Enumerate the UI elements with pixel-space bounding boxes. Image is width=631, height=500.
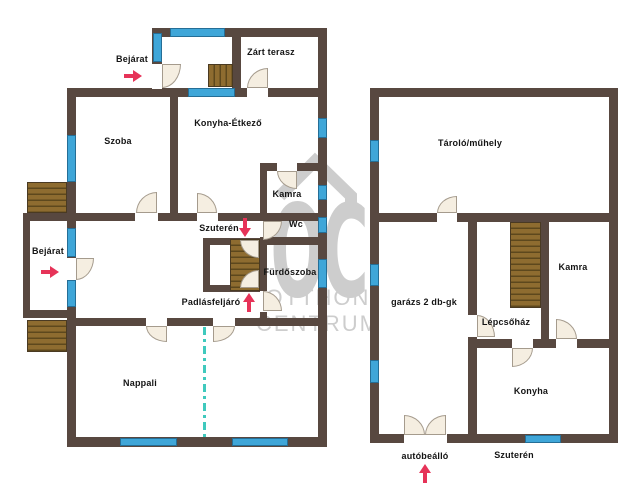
arrow-szuteren-down [239,218,251,237]
wall [541,213,549,348]
label-bejarat-left: Bejárat [32,246,64,256]
wall [370,213,618,222]
window [318,185,327,200]
stairs [27,182,67,213]
door-opening [135,213,158,221]
window [370,264,379,286]
door-opening [213,318,235,326]
window [232,438,288,446]
label-autobeallo: autóbeálló [401,451,448,461]
label-furdoszoba: Fürdőszoba [264,267,317,277]
window [188,88,235,97]
wall [477,339,618,348]
door-opening [404,434,447,443]
door-opening [556,339,577,348]
label-szuteren-left: Szuterén [199,223,239,233]
label-konyha-etkezo: Konyha-Étkező [194,118,262,128]
label-wc: Wc [289,219,303,229]
door-opening [277,163,297,171]
label-lepcsohaz: Lépcsőház [482,317,530,327]
window [318,217,327,233]
label-kamra-right: Kamra [558,262,587,272]
stairs [510,222,541,308]
arrow-autobeallo-up [419,464,431,483]
door-opening [152,64,162,89]
wall [170,97,178,221]
door-opening [468,315,477,337]
label-garazs: garázs 2 db-gk [391,297,457,307]
room-divider-line [203,327,206,437]
stairs [27,320,67,352]
wall [260,163,267,221]
floor-plan-canvas: OC OTTHON CENTRUM BejáratZárt teraszSzob… [0,0,631,500]
label-zart-terasz: Zárt terasz [247,47,295,57]
window [67,280,76,307]
wall [23,310,67,318]
wall [370,88,618,97]
label-konyha: Konyha [514,386,548,396]
wall [67,318,327,326]
arrow-padlasfeljaro-up [243,293,255,312]
label-szoba: Szoba [104,136,132,146]
label-szuteren-right: Szuterén [494,450,534,460]
window [370,140,379,162]
wall [203,238,210,292]
door-opening [197,213,218,221]
window [170,28,225,37]
window [318,259,327,288]
door-opening [146,318,167,326]
door-opening [67,258,76,281]
window [67,135,76,182]
arrow-bejarat-top [124,70,142,82]
window [67,228,76,257]
window [153,33,162,62]
wall [67,437,327,447]
wall [23,213,30,318]
window [318,118,327,138]
stairs [208,64,233,87]
label-padlasfeljaro: Padlásfeljáró [182,297,241,307]
window [525,435,561,443]
door-opening [437,213,457,222]
door-opening [512,339,533,348]
label-nappali: Nappali [123,378,157,388]
window [120,438,177,446]
label-kamra-left: Kamra [272,189,301,199]
wall [609,88,618,443]
label-bejarat-top: Bejárat [116,54,148,64]
window [370,360,379,383]
label-tarolo-muhely: Tároló/műhely [438,138,502,148]
door-opening [247,88,268,97]
wall [232,37,241,88]
arrow-bejarat-left [41,266,59,278]
